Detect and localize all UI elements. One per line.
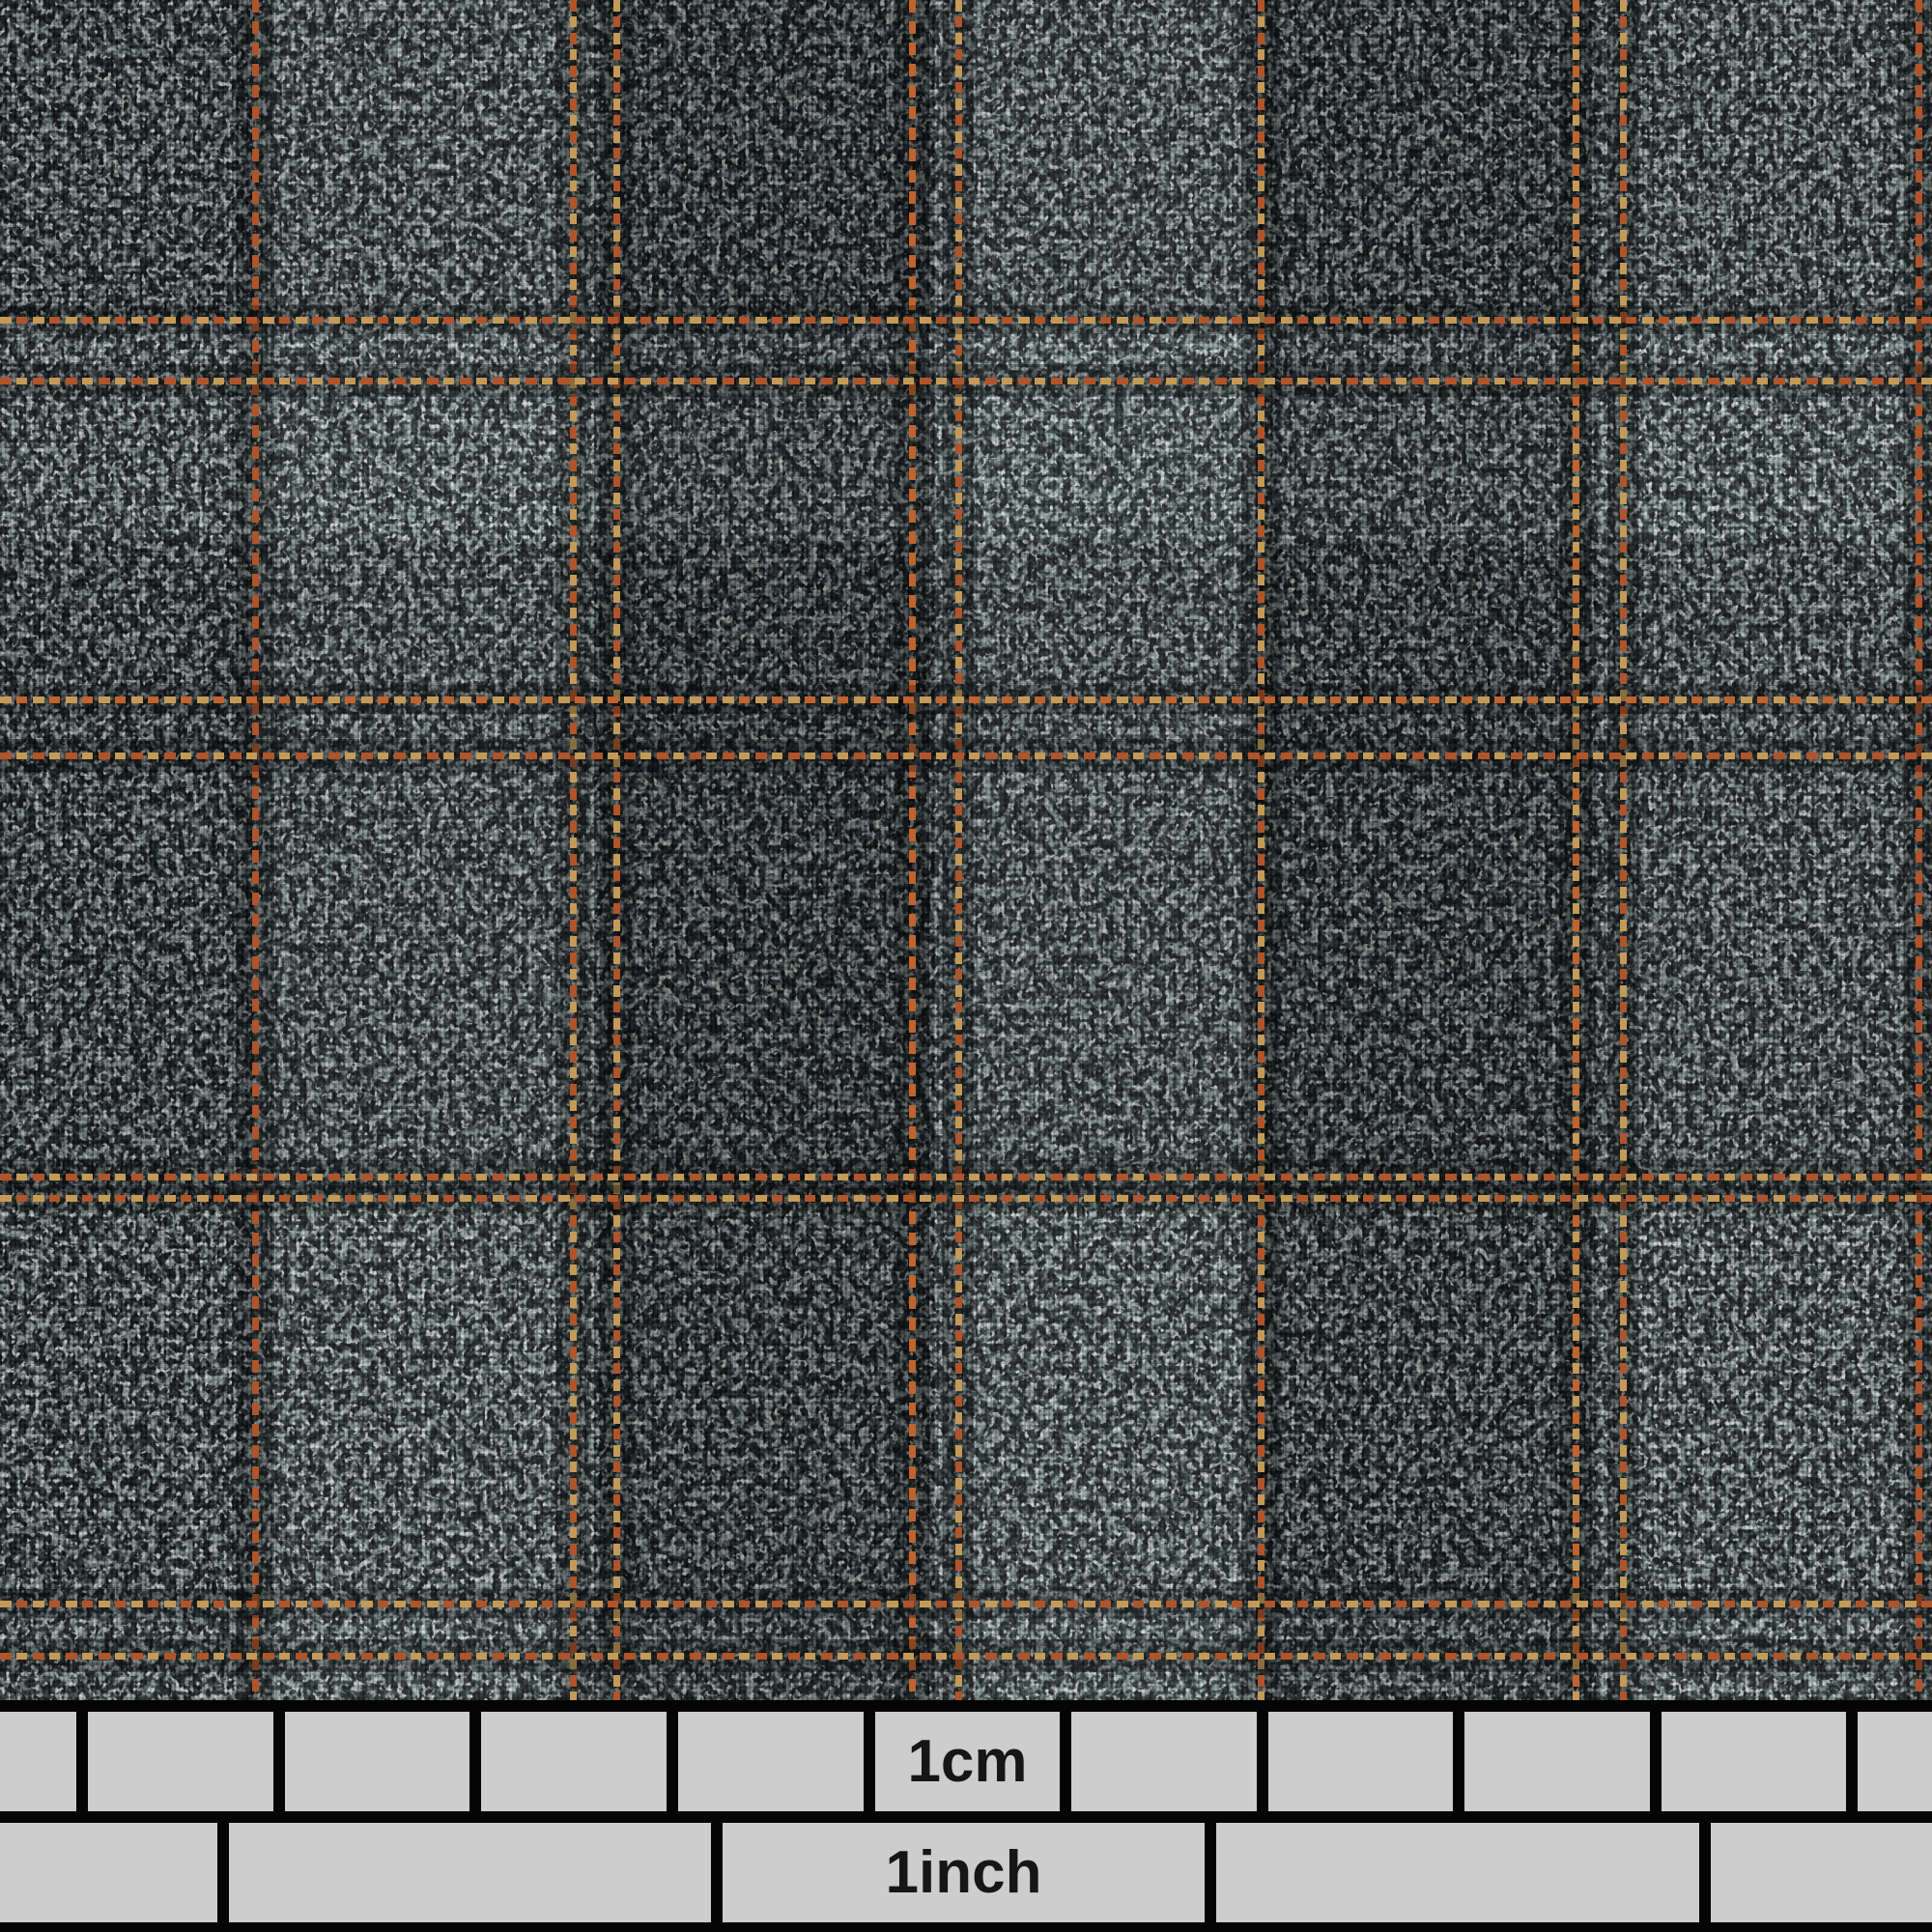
windowpane-stripes <box>0 0 1932 1932</box>
horizontal-accent-stripe <box>0 753 1932 759</box>
cm-scale-cell <box>0 1712 76 1811</box>
cm-scale-cell <box>1662 1712 1846 1811</box>
scale-label-1cm: 1cm <box>875 1712 1060 1811</box>
cm-scale-cell <box>481 1712 667 1811</box>
scale-bar: 1cm 1inch <box>0 1700 1932 1932</box>
inch-scale-cell <box>1711 1823 1932 1922</box>
inch-scale-cell <box>1216 1823 1699 1922</box>
inch-scale-cell <box>229 1823 711 1922</box>
inch-scale-cell <box>0 1823 217 1922</box>
horizontal-accent-stripe <box>0 1601 1932 1607</box>
scale-label-1inch: 1inch <box>723 1823 1205 1922</box>
cm-scale-cell <box>678 1712 864 1811</box>
cm-scale-cell <box>1268 1712 1453 1811</box>
horizontal-accent-stripe <box>0 1174 1932 1180</box>
horizontal-accent-stripe <box>0 317 1932 324</box>
cm-scale-cell <box>1071 1712 1257 1811</box>
horizontal-accent-stripe <box>0 696 1932 703</box>
cm-scale-cell <box>88 1712 273 1811</box>
cm-scale-cell <box>285 1712 469 1811</box>
horizontal-accent-stripe <box>0 378 1932 384</box>
horizontal-accent-stripe <box>0 1653 1932 1660</box>
fabric-swatch-photo: 1cm 1inch <box>0 0 1932 1932</box>
horizontal-accent-stripe <box>0 1195 1932 1202</box>
cm-scale-cell <box>1464 1712 1650 1811</box>
cm-scale-cell <box>1858 1712 1932 1811</box>
